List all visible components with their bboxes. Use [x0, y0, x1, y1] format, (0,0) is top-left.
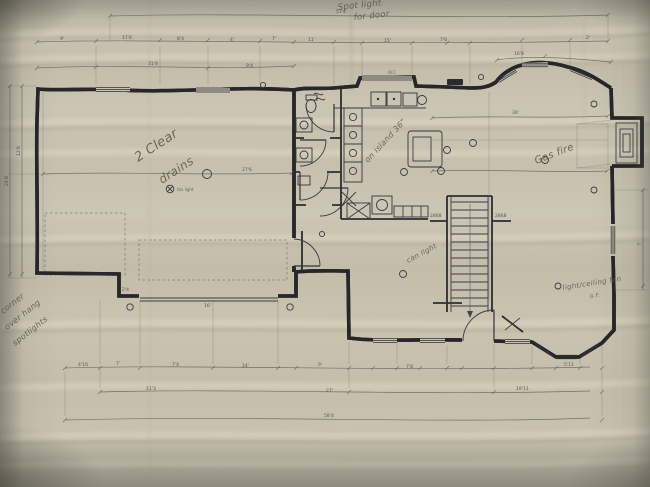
washer-dryer: [347, 203, 370, 219]
dim-label: 7': [272, 36, 276, 42]
kitchen-sink: [371, 92, 401, 106]
dim-label: 31'8: [148, 61, 158, 67]
dishwasher: [403, 93, 417, 106]
dim-label: 17'6: [122, 35, 132, 41]
dim-label: 27'6: [242, 167, 252, 173]
dim-label: 9': [60, 36, 64, 42]
floor-plan-photo: Spot light for door 2 Clear drains on is…: [0, 0, 650, 487]
top-note-line2: for door: [353, 9, 390, 23]
dim-label: 8'4: [177, 36, 184, 42]
dim-label: 2': [586, 35, 590, 41]
dim-label: 2'4: [122, 287, 129, 293]
dim-label: 14': [242, 363, 249, 369]
dim-label: 2868: [495, 213, 507, 219]
dim-label: 11': [308, 37, 315, 43]
kitchen-sink-window: [362, 76, 412, 81]
dim-label: 7': [637, 242, 643, 246]
dim-label: 16'8: [514, 51, 524, 57]
dim-label: 7': [116, 361, 120, 367]
dimension-lines-top: [35, 13, 613, 84]
dim-label: 27': [326, 388, 333, 394]
dim-label: 2868: [430, 213, 442, 219]
dim-label: 12'6: [16, 146, 22, 156]
dim-label: 24'8: [4, 176, 10, 186]
bench: [394, 206, 428, 217]
dim-label: 57'4: [336, 9, 346, 15]
garage-fan-note: fan light: [177, 187, 194, 192]
dim-label: 9'4: [246, 63, 253, 69]
window-schedule-label: [447, 79, 463, 85]
dim-label: 7'8: [406, 364, 413, 370]
fireplace-note: Gas fire: [533, 142, 575, 167]
garage-note-line2: drains: [156, 154, 196, 187]
dim-label: 15': [384, 38, 391, 44]
floor-plan-drawing: Spot light for door 2 Clear drains on is…: [0, 0, 650, 487]
dim-label: 4'10: [78, 362, 88, 368]
fan-note-sub: G.F.: [589, 292, 600, 300]
dim-label: 9': [318, 362, 322, 368]
dim-label: 19'11: [516, 386, 529, 392]
dim-label: 30': [512, 110, 519, 116]
dim-label: 5'11: [564, 362, 574, 368]
dimension-lines-bottom: [63, 300, 604, 422]
handwritten-annotations: Spot light for door 2 Clear drains on is…: [0, 0, 622, 348]
stair-direction-arrow: [467, 311, 473, 318]
dim-label: 7'4: [172, 362, 179, 368]
dim-label: 7'6: [440, 37, 447, 43]
dim-label: 16': [204, 303, 211, 309]
water-heater: [372, 196, 392, 214]
dim-label: 58'4: [324, 413, 334, 419]
dim-label: 4': [230, 37, 234, 43]
garage-fan-symbol: [166, 185, 174, 193]
garage-note-line1: 2 Clear: [132, 126, 182, 166]
dim-label: 11'3: [146, 386, 156, 392]
mud-laundry: [319, 188, 428, 237]
cooktop: [418, 96, 427, 105]
ceiling-fan-symbol: [555, 283, 561, 289]
acc-label: ACC: [388, 70, 396, 75]
